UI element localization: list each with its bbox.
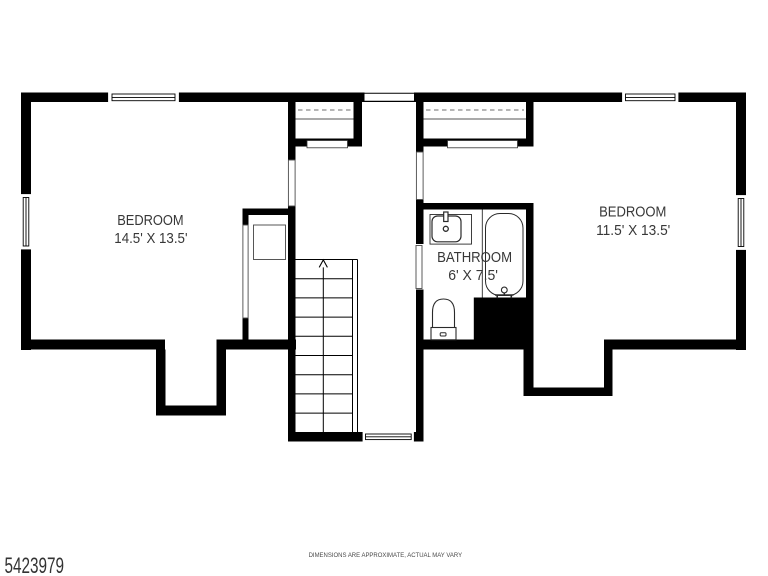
svg-text:BATHROOM: BATHROOM	[437, 250, 512, 266]
svg-text:BEDROOM: BEDROOM	[117, 213, 183, 229]
svg-text:BEDROOM: BEDROOM	[599, 204, 666, 220]
svg-text:DIMENSIONS ARE APPROXIMATE, AC: DIMENSIONS ARE APPROXIMATE, ACTUAL MAY V…	[309, 553, 463, 559]
svg-text:5423979: 5423979	[5, 553, 65, 576]
svg-text:11.5' X 13.5': 11.5' X 13.5'	[596, 223, 670, 239]
svg-text:6' X 7.5': 6' X 7.5'	[448, 268, 498, 284]
svg-text:14.5' X 13.5': 14.5' X 13.5'	[114, 231, 187, 247]
